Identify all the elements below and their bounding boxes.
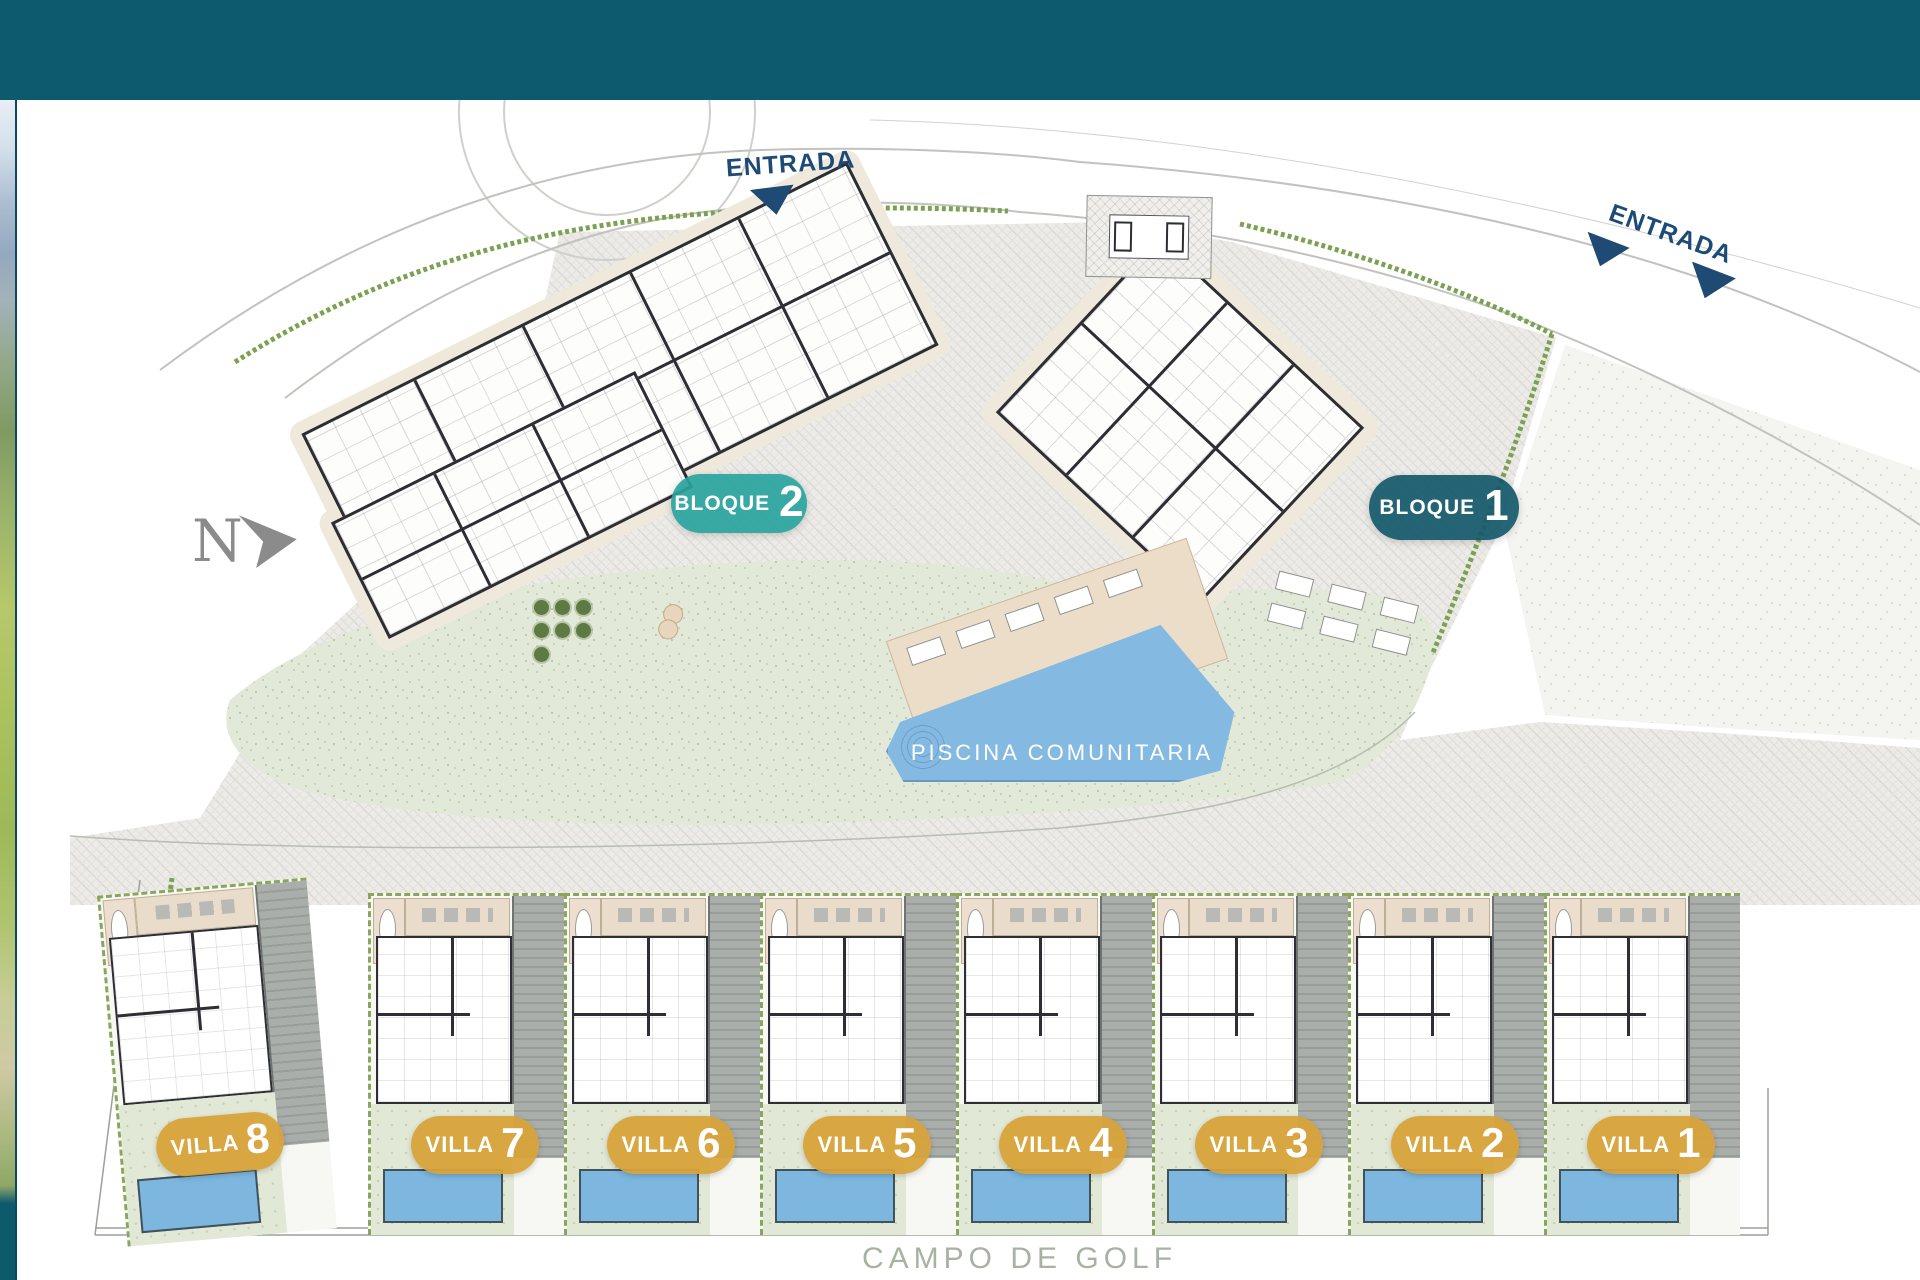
bloque-1-label: BLOQUE — [1379, 496, 1475, 520]
villa-5-label: VILLA — [818, 1132, 887, 1158]
villa-4-number: 4 — [1089, 1122, 1112, 1164]
bin-store — [1109, 214, 1190, 259]
lounger-icon — [1103, 569, 1143, 599]
villa-floorplan — [964, 936, 1100, 1104]
villa-terrace — [405, 898, 510, 936]
villa-2-plot: VILLA 2 — [1348, 893, 1544, 1235]
villa-pool — [971, 1169, 1091, 1223]
villa-floorplan — [109, 925, 273, 1105]
golf-photo-strip — [0, 100, 17, 1280]
villa-4-plot: VILLA 4 — [956, 893, 1152, 1235]
tree-icon — [555, 623, 570, 638]
villa-pool — [137, 1169, 261, 1233]
tree-icon — [576, 623, 591, 638]
villa-2-number: 2 — [1481, 1122, 1504, 1164]
villa-8-label: VILLA — [170, 1129, 241, 1161]
master-plan: PISCINA COMUNITARIA BLOQUE 2 BLOQUE 1 EN… — [0, 0, 1920, 1280]
villa-floorplan — [1552, 936, 1688, 1104]
villa-1-plot: VILLA 1 — [1544, 893, 1740, 1235]
villa-3-plot: VILLA 3 — [1152, 893, 1348, 1235]
lounger-icon — [955, 619, 995, 649]
lounger-icon — [1004, 602, 1044, 632]
villa-7-number: 7 — [501, 1122, 524, 1164]
villa-8-number: 8 — [244, 1117, 271, 1161]
north-arrow-icon — [239, 508, 297, 568]
villa-6-pill[interactable]: VILLA 6 — [607, 1116, 735, 1174]
bloque-2-label: BLOQUE — [674, 492, 770, 516]
villa-7-plot: VILLA 7 — [368, 893, 564, 1235]
bloque-1-number: 1 — [1484, 484, 1508, 528]
villa-6-number: 6 — [697, 1122, 720, 1164]
villa-terrace — [601, 898, 706, 936]
villa-5-plot: VILLA 5 — [760, 893, 956, 1235]
bloque-2-number: 2 — [779, 480, 803, 524]
tree-cluster — [534, 600, 604, 664]
lounger-icon — [906, 636, 946, 666]
villa-terrace — [1581, 898, 1686, 936]
villa-pool — [1167, 1169, 1287, 1223]
tree-icon — [534, 623, 549, 638]
villa-5-pill[interactable]: VILLA 5 — [803, 1116, 931, 1174]
villa-1-number: 1 — [1677, 1122, 1700, 1164]
villa-pool — [579, 1169, 699, 1223]
villa-8-plot: VILLA 8 — [97, 878, 337, 1247]
villa-pool — [383, 1169, 503, 1223]
villa-terrace — [1385, 898, 1490, 936]
tree-icon — [534, 647, 549, 662]
lounger-icon — [1372, 629, 1412, 656]
north-label: N — [192, 512, 243, 570]
lounger-icon — [1267, 603, 1307, 630]
villa-2-label: VILLA — [1406, 1132, 1475, 1158]
villa-floorplan — [768, 936, 904, 1104]
villa-6-label: VILLA — [622, 1132, 691, 1158]
tree-icon — [534, 600, 549, 615]
tree-icon — [576, 600, 591, 615]
pool-label: PISCINA COMUNITARIA — [886, 740, 1238, 766]
villa-terrace — [1189, 898, 1294, 936]
villa-floorplan — [572, 936, 708, 1104]
villa-floorplan — [1356, 936, 1492, 1104]
villa-6-plot: VILLA 6 — [564, 893, 760, 1235]
villa-terrace — [993, 898, 1098, 936]
villa-floorplan — [376, 936, 512, 1104]
villa-terrace — [797, 898, 902, 936]
north-indicator: N — [192, 512, 297, 570]
golf-course-label: CAMPO DE GOLF — [862, 1242, 1177, 1276]
villa-3-pill[interactable]: VILLA 3 — [1195, 1116, 1323, 1174]
villa-1-pill[interactable]: VILLA 1 — [1587, 1116, 1715, 1174]
villa-pool — [775, 1169, 895, 1223]
villa-floorplan — [1160, 936, 1296, 1104]
villa-4-pill[interactable]: VILLA 4 — [999, 1116, 1127, 1174]
villa-2-pill[interactable]: VILLA 2 — [1391, 1116, 1519, 1174]
bloque-2-pill[interactable]: BLOQUE 2 — [671, 474, 807, 533]
lounger-icon — [1054, 586, 1094, 616]
villa-1-label: VILLA — [1602, 1132, 1671, 1158]
villa-7-label: VILLA — [426, 1132, 495, 1158]
villa-4-label: VILLA — [1014, 1132, 1083, 1158]
villa-7-pill[interactable]: VILLA 7 — [411, 1116, 539, 1174]
bloque-1-pill[interactable]: BLOQUE 1 — [1369, 475, 1519, 540]
villa-5-number: 5 — [893, 1122, 916, 1164]
tree-icon — [555, 600, 570, 615]
villa-3-label: VILLA — [1210, 1132, 1279, 1158]
header-bar — [0, 0, 1920, 100]
utility-paved-square — [1085, 195, 1212, 279]
villa-3-number: 3 — [1285, 1122, 1308, 1164]
villa-pool — [1363, 1169, 1483, 1223]
villa-pool — [1559, 1169, 1679, 1223]
lounger-icon — [1319, 616, 1359, 643]
